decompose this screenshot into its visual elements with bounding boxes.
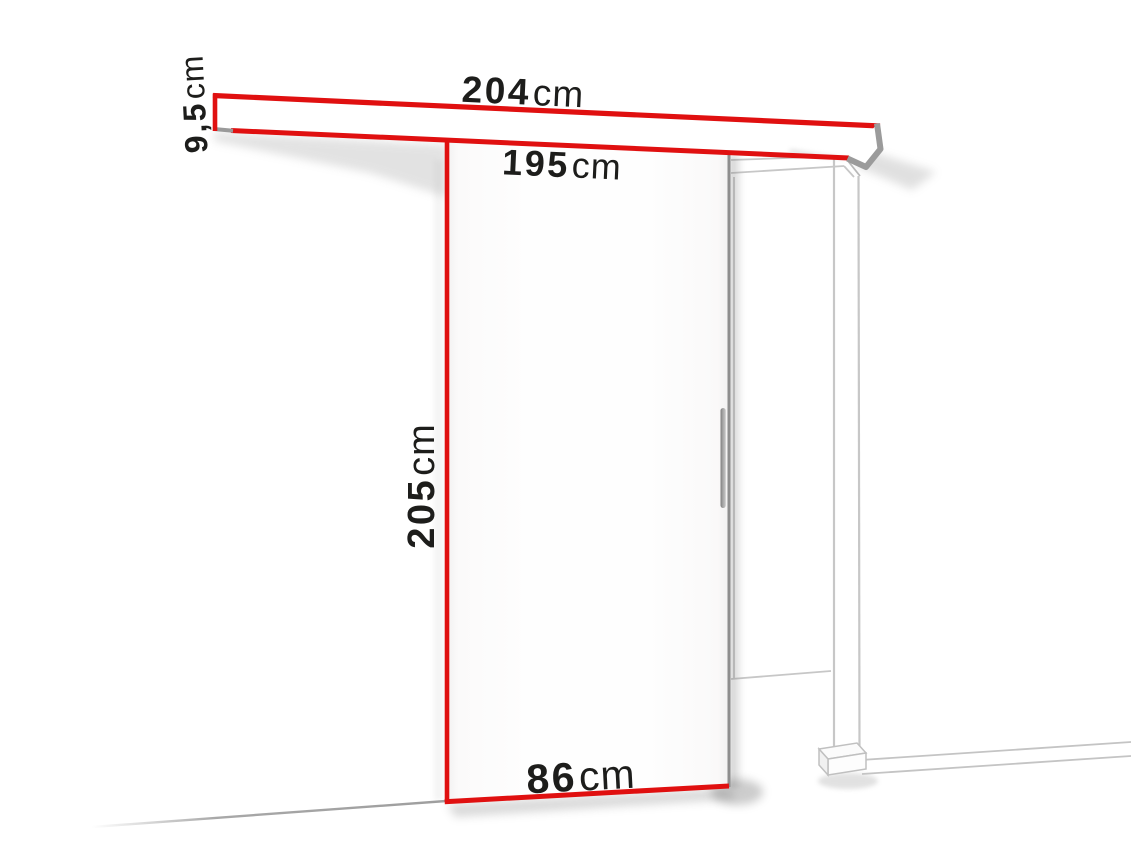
- rail-length-unit: cm: [532, 72, 585, 115]
- clear-width-label: 195cm: [501, 144, 622, 185]
- clear-width-value: 195: [501, 141, 570, 185]
- door-height-unit: cm: [401, 423, 443, 476]
- sliding-door-illustration: [0, 0, 1131, 848]
- rear-baseboard-line: [731, 671, 831, 679]
- diagram-canvas: 204cm 9,5cm 195cm 205cm 86cm: [0, 0, 1131, 848]
- frame-head-line-inner: [731, 166, 844, 173]
- rail-height-value: 9,5: [176, 100, 215, 154]
- frame-right-jamb-outer: [859, 176, 860, 749]
- door-width-value: 86: [525, 754, 578, 803]
- rail-length-label: 204cm: [461, 71, 585, 114]
- door-width-unit: cm: [578, 751, 637, 800]
- rail-height-label: 9,5cm: [175, 54, 212, 154]
- skirting-right-upper: [861, 742, 1131, 760]
- door-height-value: 205: [401, 478, 443, 549]
- doorway-frame: [731, 156, 860, 749]
- floor-line-left: [92, 801, 446, 827]
- frame-base: [818, 742, 1131, 789]
- door-height-label: 205cm: [403, 423, 441, 549]
- sliding-door: [445, 140, 729, 802]
- door-width-label: 86cm: [525, 754, 636, 801]
- door-panel: [447, 141, 729, 802]
- shadow-under-rail: [214, 132, 447, 197]
- rail-height-unit: cm: [173, 54, 211, 100]
- door-handle: [721, 408, 726, 508]
- clear-width-unit: cm: [571, 144, 623, 187]
- plinth-shadow: [818, 773, 878, 789]
- door-shadow-right: [730, 156, 744, 788]
- skirting-right-lower: [862, 756, 1131, 774]
- rail-length-value: 204: [461, 69, 532, 113]
